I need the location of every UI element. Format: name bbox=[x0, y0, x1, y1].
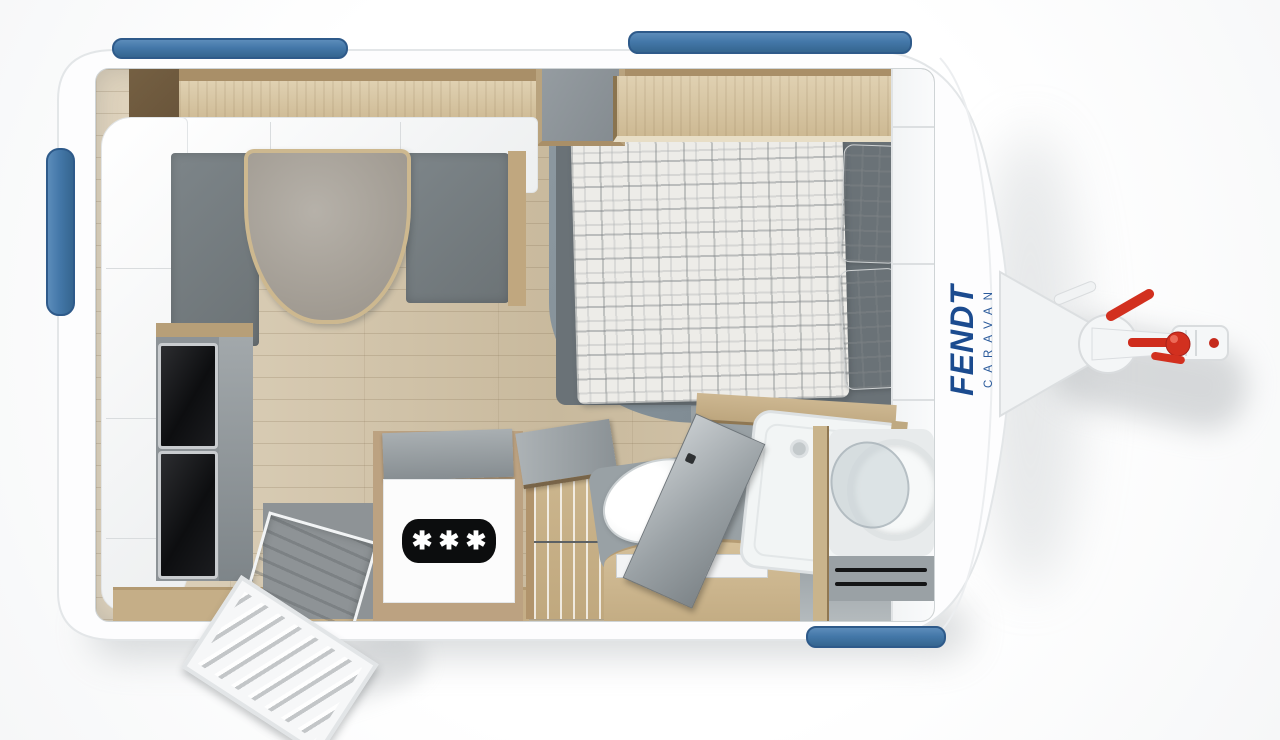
towel-rail bbox=[835, 582, 927, 586]
seat-backrest-wood bbox=[508, 151, 526, 306]
fridge-side-panel bbox=[219, 337, 253, 581]
fridge-top-trim bbox=[156, 323, 253, 337]
dinette-table bbox=[244, 149, 411, 324]
toilet-partition-wall bbox=[813, 426, 829, 621]
window-front-right bbox=[628, 31, 912, 54]
toilet-counter bbox=[829, 556, 934, 601]
tall-cabinet bbox=[536, 69, 625, 146]
brand-name: FENDT bbox=[946, 284, 978, 396]
hitch-red-lever bbox=[1104, 287, 1156, 323]
towel-rail bbox=[835, 568, 927, 572]
freezer-stars: ✱✱✱ bbox=[412, 526, 493, 556]
bed-overhead-shelf bbox=[613, 76, 897, 142]
locker-seam bbox=[893, 126, 935, 128]
hitch-red-knob bbox=[1166, 332, 1190, 356]
coupling-red-dot bbox=[1209, 338, 1219, 348]
toilet-area bbox=[829, 429, 934, 556]
window-rear-right bbox=[806, 626, 946, 648]
window-front-left bbox=[112, 38, 348, 59]
interior-floor: ✱✱✱ bbox=[95, 68, 935, 622]
cooker-lid bbox=[382, 429, 514, 482]
cooker-unit: ✱✱✱ bbox=[373, 431, 523, 621]
shower-door-hinge bbox=[685, 453, 697, 465]
fridge-door bbox=[158, 451, 218, 579]
brand-subtitle: CARAVAN bbox=[983, 285, 995, 395]
brand-lettering: FENDT CARAVAN bbox=[902, 275, 1038, 405]
locker-seam bbox=[893, 263, 935, 265]
jockey-handle bbox=[1053, 280, 1098, 306]
freezer-stars-badge: ✱✱✱ bbox=[402, 519, 496, 563]
fendt-caravan-floorplan: ✱✱✱ bbox=[0, 0, 1280, 740]
cooker-front: ✱✱✱ bbox=[383, 479, 515, 603]
seat-cushion-right bbox=[406, 153, 509, 303]
fridge-oven-tower bbox=[156, 323, 253, 581]
bed-duvet bbox=[571, 129, 850, 404]
window-side-left bbox=[46, 148, 75, 316]
hitch-red-knob-highlight bbox=[1170, 335, 1178, 343]
oven-door bbox=[158, 343, 218, 449]
